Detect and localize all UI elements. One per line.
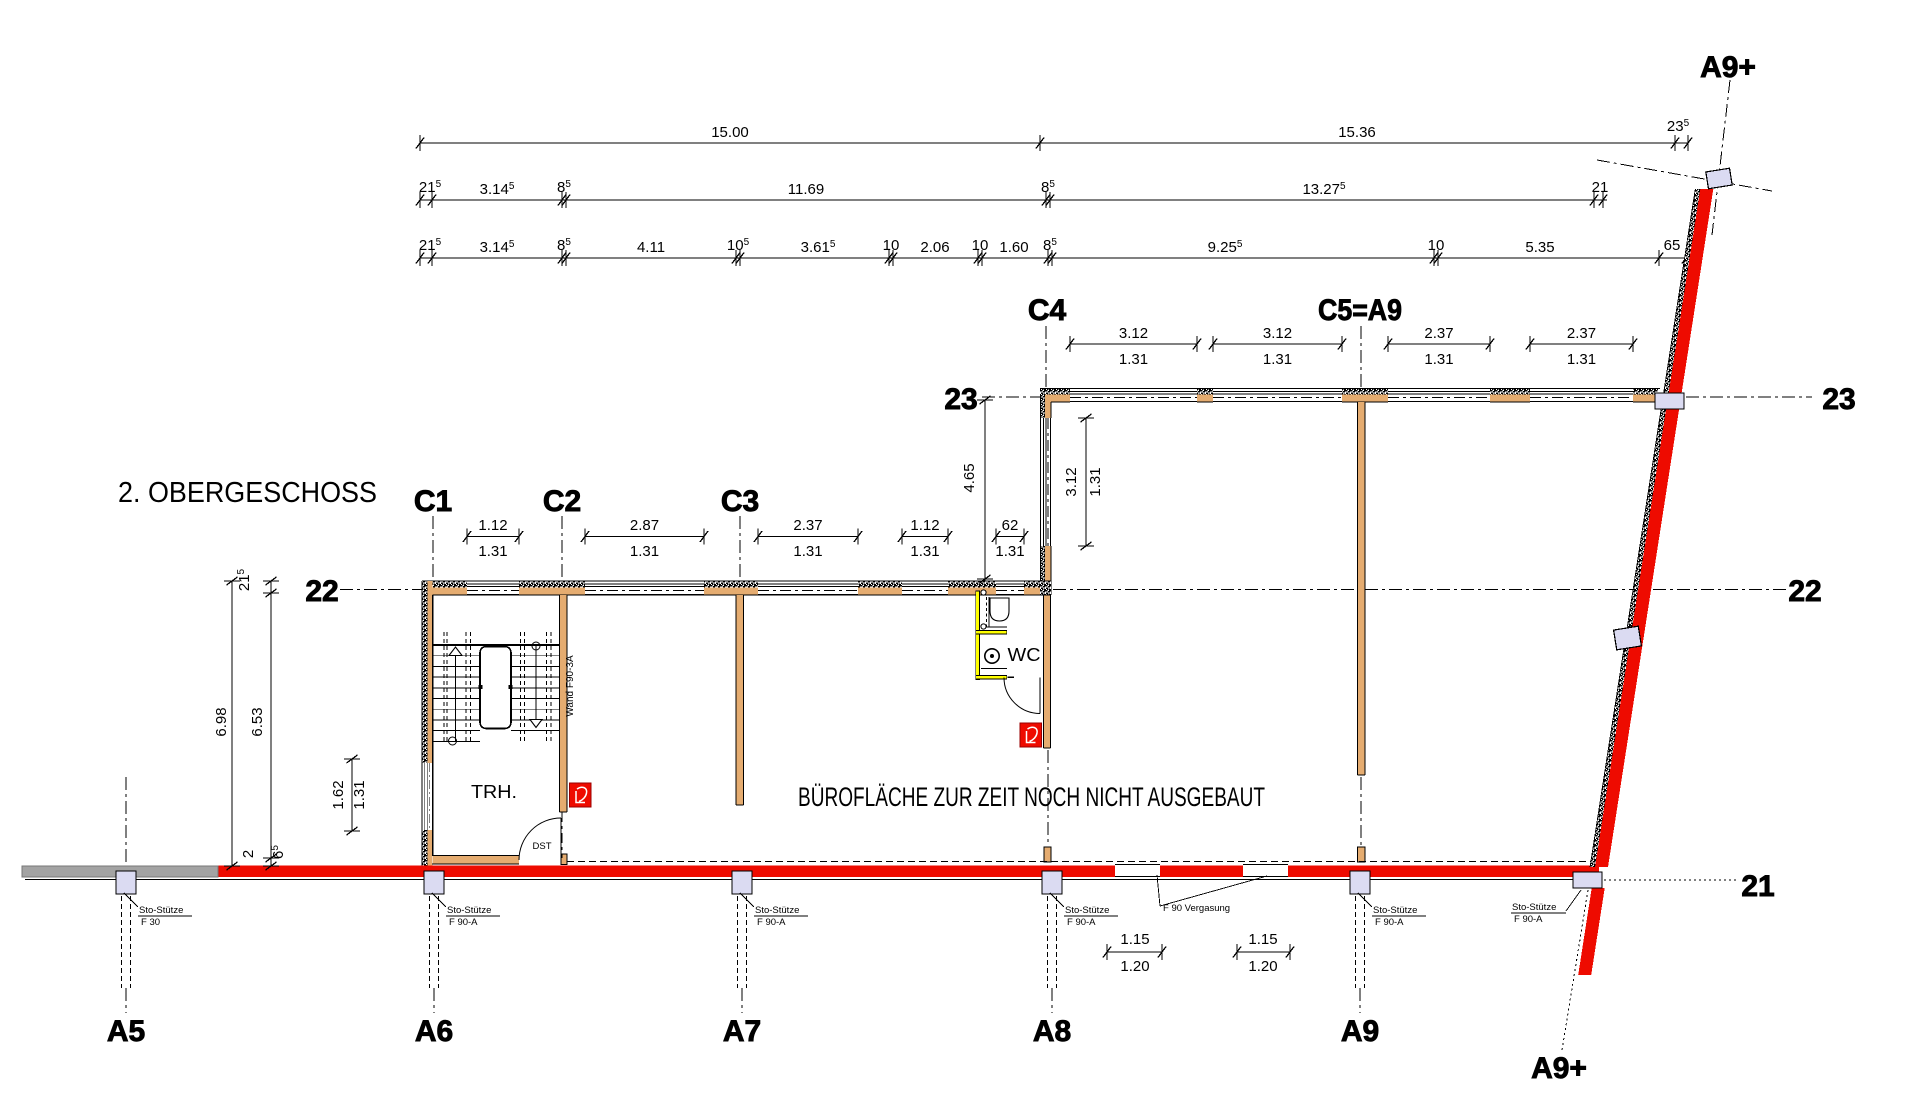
svg-text:2.37: 2.37: [793, 517, 822, 534]
svg-text:1.31: 1.31: [793, 543, 822, 560]
svg-text:3.12: 3.12: [1119, 325, 1148, 342]
svg-text:3.12: 3.12: [1263, 325, 1292, 342]
svg-text:22: 22: [305, 575, 338, 608]
svg-text:1.31: 1.31: [478, 543, 507, 560]
svg-text:WC: WC: [1008, 645, 1041, 665]
svg-text:11.69: 11.69: [788, 181, 824, 198]
svg-text:F 90-A: F 90-A: [1514, 914, 1543, 925]
svg-text:1.20: 1.20: [1248, 958, 1277, 975]
svg-text:A9+: A9+: [1531, 1052, 1587, 1085]
svg-text:A7: A7: [723, 1015, 761, 1048]
svg-text:10: 10: [883, 237, 900, 254]
svg-text:2.06: 2.06: [920, 239, 949, 256]
svg-text:DST: DST: [533, 841, 552, 852]
svg-text:C3: C3: [721, 485, 759, 518]
svg-text:Sto-Stütze: Sto-Stütze: [1373, 905, 1417, 916]
svg-text:62: 62: [1002, 517, 1019, 534]
svg-text:A9+: A9+: [1700, 51, 1756, 84]
svg-text:1.15: 1.15: [1248, 931, 1277, 948]
svg-text:5.35: 5.35: [1525, 239, 1554, 256]
svg-text:C5=A9: C5=A9: [1318, 294, 1402, 327]
svg-text:4.11: 4.11: [637, 239, 665, 256]
svg-text:A9: A9: [1341, 1015, 1379, 1048]
svg-text:10: 10: [972, 237, 989, 254]
svg-text:1.60: 1.60: [999, 239, 1028, 256]
svg-text:F 90-A: F 90-A: [1375, 917, 1404, 928]
svg-text:1.31: 1.31: [630, 543, 659, 560]
svg-text:2.37: 2.37: [1567, 325, 1596, 342]
svg-text:F 90-A: F 90-A: [1067, 917, 1096, 928]
svg-text:BÜROFLÄCHE ZUR ZEIT NOCH NICHT: BÜROFLÄCHE ZUR ZEIT NOCH NICHT AUSGEBAUT: [798, 782, 1265, 812]
svg-text:6.98: 6.98: [213, 707, 230, 736]
svg-text:22: 22: [1788, 575, 1821, 608]
svg-text:1.15: 1.15: [1120, 931, 1149, 948]
svg-text:1.31: 1.31: [1567, 351, 1596, 368]
svg-text:C2: C2: [543, 485, 581, 518]
svg-text:1.20: 1.20: [1120, 958, 1149, 975]
svg-text:2. OBERGESCHOSS: 2. OBERGESCHOSS: [118, 477, 377, 509]
svg-text:2.37: 2.37: [1424, 325, 1453, 342]
svg-text:C1: C1: [414, 485, 452, 518]
svg-text:1.31: 1.31: [1424, 351, 1453, 368]
svg-text:1.12: 1.12: [910, 517, 939, 534]
svg-text:F 30: F 30: [141, 917, 160, 928]
svg-text:TRH.: TRH.: [471, 782, 517, 802]
svg-text:A8: A8: [1033, 1015, 1071, 1048]
svg-text:Sto-Stütze: Sto-Stütze: [139, 905, 183, 916]
svg-text:6.53: 6.53: [249, 707, 266, 736]
svg-text:15.36: 15.36: [1338, 124, 1376, 141]
svg-text:F 90 Vergasung: F 90 Vergasung: [1163, 903, 1230, 914]
svg-text:23: 23: [944, 383, 977, 416]
svg-text:2.87: 2.87: [630, 517, 659, 534]
svg-text:23: 23: [1822, 383, 1855, 416]
svg-text:Sto-Stütze: Sto-Stütze: [1065, 905, 1109, 916]
svg-text:1.31: 1.31: [1119, 351, 1148, 368]
svg-text:15.00: 15.00: [711, 124, 749, 141]
svg-text:1.31: 1.31: [351, 780, 368, 809]
svg-text:13.275: 13.275: [1302, 181, 1346, 198]
svg-text:C4: C4: [1028, 294, 1067, 327]
svg-text:Wand F90-3A: Wand F90-3A: [565, 655, 576, 717]
svg-text:Sto-Stütze: Sto-Stütze: [755, 905, 799, 916]
svg-text:1.31: 1.31: [995, 543, 1024, 560]
svg-text:1.31: 1.31: [1263, 351, 1292, 368]
svg-text:1.62: 1.62: [330, 780, 347, 809]
svg-text:10: 10: [1428, 237, 1445, 254]
svg-text:1.31: 1.31: [1087, 467, 1104, 496]
svg-text:1.12: 1.12: [478, 517, 507, 534]
svg-text:2: 2: [240, 850, 257, 858]
svg-text:3.12: 3.12: [1063, 467, 1080, 496]
svg-text:A6: A6: [415, 1015, 453, 1048]
svg-text:65: 65: [1664, 237, 1681, 254]
svg-text:F 90-A: F 90-A: [757, 917, 786, 928]
svg-text:Sto-Stütze: Sto-Stütze: [1512, 902, 1556, 913]
svg-text:Sto-Stütze: Sto-Stütze: [447, 905, 491, 916]
svg-text:4.65: 4.65: [961, 463, 978, 492]
svg-text:21: 21: [1741, 870, 1774, 903]
svg-text:A5: A5: [107, 1015, 145, 1048]
svg-text:F 90-A: F 90-A: [449, 917, 478, 928]
svg-text:21: 21: [1592, 179, 1609, 196]
svg-text:1.31: 1.31: [910, 543, 939, 560]
